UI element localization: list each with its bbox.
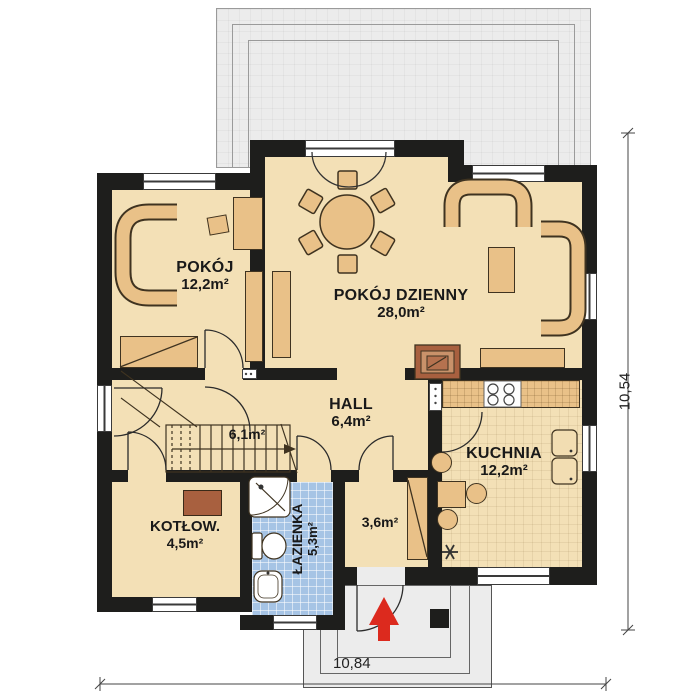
floor-plan: POKÓJ 12,2m² POKÓJ DZIENNY 28,0m² HALL 6… — [0, 0, 700, 700]
wall-right — [582, 165, 597, 585]
window-kitchen-right — [582, 425, 597, 472]
room-label-stairs: 6,1m² — [207, 427, 287, 443]
room-area: 12,2m² — [135, 277, 275, 294]
room-area: 28,0m² — [306, 305, 496, 322]
door-opening-boiler — [128, 470, 166, 482]
room-area: 6,1m² — [207, 427, 287, 443]
room-area: 5,3m² — [306, 474, 321, 604]
passage-hall-living — [337, 368, 405, 380]
room-name: KUCHNIA — [444, 445, 564, 463]
wall-hall-top — [97, 368, 205, 380]
desk — [233, 197, 263, 250]
dimension-height-label: 10,54 — [617, 360, 634, 424]
window-pokoj — [143, 173, 216, 190]
kitchen-counter — [442, 380, 580, 408]
kitchen-table — [437, 481, 466, 508]
wall-hall-bottom — [97, 470, 128, 482]
window-kitchen-bottom — [477, 567, 550, 585]
room-label-kitchen: KUCHNIA 12,2m² — [444, 445, 564, 480]
kitchen-folding-door — [429, 383, 442, 411]
desk-chair — [207, 214, 230, 235]
wall-hall-top — [243, 368, 337, 380]
kitchen-stool — [466, 483, 487, 504]
door-opening-vestibule — [359, 470, 393, 482]
room-label-bathroom: ŁAZIENKA 5,3m² — [290, 474, 324, 604]
wall-hall-bottom — [166, 470, 297, 482]
room-name: KOTŁOW. — [125, 519, 245, 536]
wall-kitchen-top — [405, 368, 582, 380]
boiler-unit — [183, 490, 222, 516]
door-opening-pokoj — [205, 368, 243, 380]
room-area: 6,4m² — [301, 414, 401, 431]
room-label-pokoj: POKÓJ 12,2m² — [135, 259, 275, 294]
porch-pillar — [430, 609, 449, 628]
room-area: 12,2m² — [444, 463, 564, 480]
room-floor-living — [265, 157, 448, 368]
door-opening-entrance — [357, 567, 405, 585]
tv-stand — [480, 348, 565, 368]
room-label-living: POKÓJ DZIENNY 28,0m² — [306, 287, 496, 322]
kitchen-stool — [437, 509, 458, 530]
hall-threshold — [242, 369, 257, 379]
room-name: POKÓJ — [135, 259, 275, 277]
dimension-width-label: 10,84 — [333, 655, 403, 672]
room-name: POKÓJ DZIENNY — [306, 287, 496, 305]
wall-bottom-vestibule — [405, 567, 442, 585]
room-label-vestibule: 3,6m² — [340, 515, 420, 531]
window-boiler — [152, 597, 197, 612]
room-label-boiler: KOTŁOW. 4,5m² — [125, 519, 245, 551]
wall-hall-bottom — [331, 470, 359, 482]
window-living-top — [472, 165, 545, 182]
room-area: 4,5m² — [125, 536, 245, 552]
balcony-door-living — [305, 140, 395, 157]
window-living-right — [582, 273, 597, 320]
room-name: ŁAZIENKA — [290, 474, 306, 604]
window-hall-left — [97, 385, 112, 432]
wall-bottom-vestibule — [333, 567, 357, 585]
room-name: HALL — [301, 396, 401, 414]
room-label-hall: HALL 6,4m² — [301, 396, 401, 431]
window-bathroom — [273, 615, 317, 630]
room-area: 3,6m² — [340, 515, 420, 531]
wardrobe-pokoj — [120, 336, 198, 368]
room-floor-living — [448, 182, 582, 368]
wall-bath-right — [333, 482, 345, 630]
